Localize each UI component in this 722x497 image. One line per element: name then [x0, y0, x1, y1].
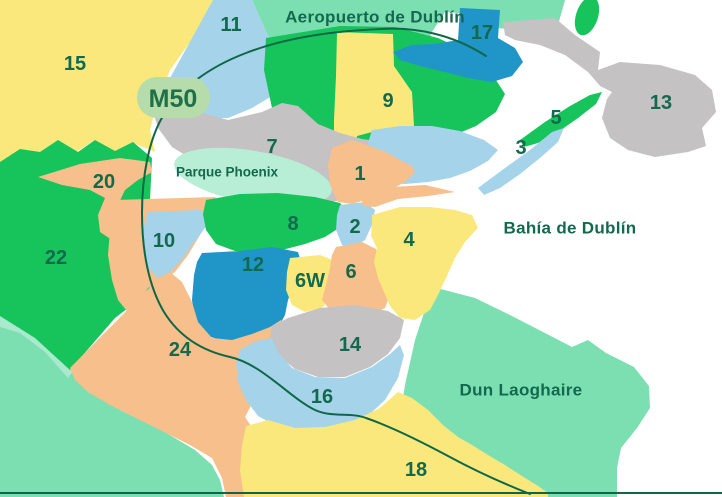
district-24-label: 24: [169, 339, 192, 361]
district-12-label: 12: [242, 254, 264, 276]
m50-badge-label: M50: [149, 85, 198, 113]
district-6-label: 6: [345, 261, 356, 283]
district-16-label: 16: [311, 386, 333, 408]
district-5-label: 5: [550, 107, 561, 129]
district-20-label: 20: [93, 171, 115, 193]
district-15-label: 15: [64, 53, 86, 75]
phoenix-park-label: Parque Phoenix: [176, 165, 279, 180]
district-9-label: 9: [382, 90, 393, 112]
district-3-label: 3: [515, 137, 526, 159]
district-2-label: 2: [349, 216, 360, 238]
district-7-label: 7: [266, 136, 277, 158]
district-6w-label: 6W: [295, 270, 325, 292]
district-4-label: 4: [403, 229, 415, 251]
dublin-bay-label: Bahía de Dublín: [504, 219, 637, 238]
district-17-label: 17: [471, 22, 493, 44]
district-11-label: 11: [220, 14, 241, 36]
district-10-label: 10: [153, 230, 175, 252]
district-14-label: 14: [339, 334, 362, 356]
district-18-label: 18: [405, 459, 427, 481]
dun-laoghaire-label: Dun Laoghaire: [460, 381, 583, 400]
district-8-label: 8: [287, 213, 298, 235]
dublin-districts-map: M50 Aeropuerto de Dublín Bahía de Dublín…: [0, 0, 722, 497]
district-1-label: 1: [354, 163, 365, 185]
district-22-label: 22: [45, 247, 67, 269]
district-13-label: 13: [650, 92, 672, 114]
airport-label: Aeropuerto de Dublín: [285, 8, 465, 27]
